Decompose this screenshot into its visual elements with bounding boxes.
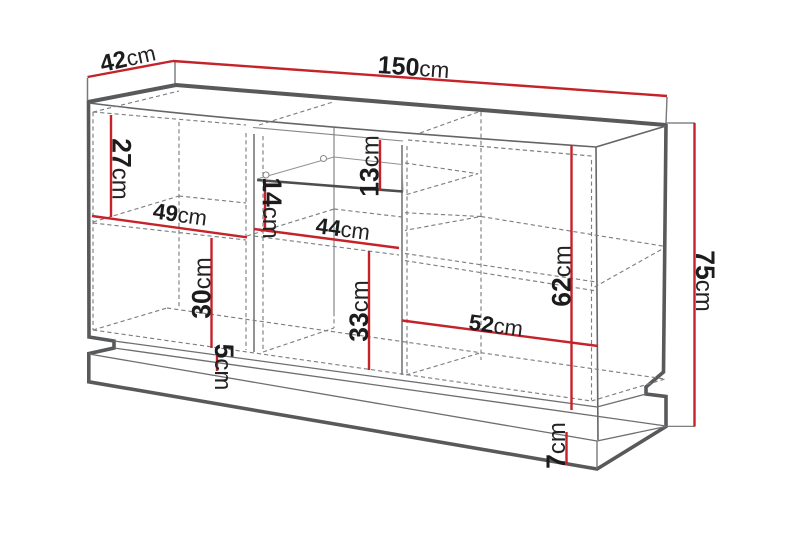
svg-text:75cm: 75cm <box>690 250 720 311</box>
svg-text:27cm: 27cm <box>107 138 137 199</box>
svg-text:62cm: 62cm <box>547 245 577 306</box>
svg-text:33cm: 33cm <box>344 280 374 341</box>
svg-text:14cm: 14cm <box>257 177 287 238</box>
svg-text:5cm: 5cm <box>209 344 239 391</box>
svg-text:13cm: 13cm <box>355 135 385 196</box>
svg-text:7cm: 7cm <box>541 422 571 469</box>
svg-text:30cm: 30cm <box>187 257 217 318</box>
